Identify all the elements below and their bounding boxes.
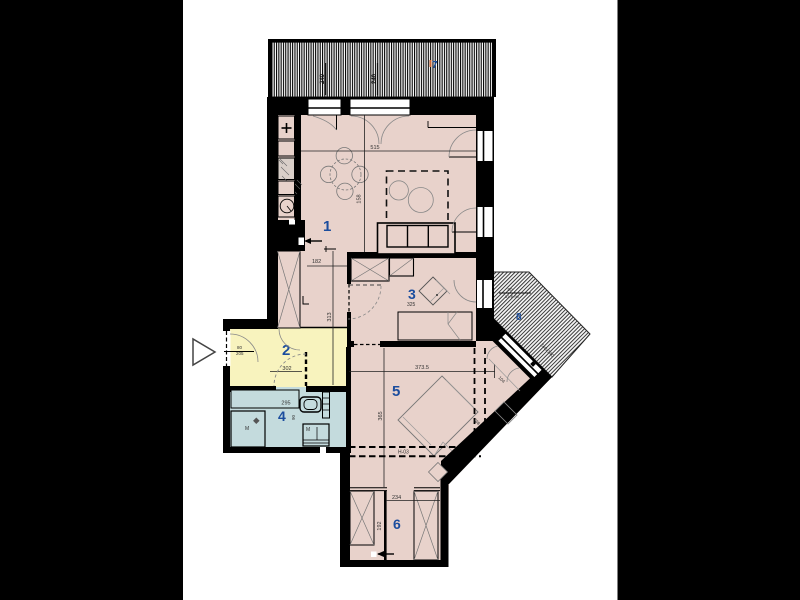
svg-text:182: 182 xyxy=(312,259,321,265)
svg-text:90: 90 xyxy=(291,414,296,420)
svg-text:H-03: H-03 xyxy=(398,450,409,456)
svg-text:7: 7 xyxy=(432,60,438,71)
svg-text:302: 302 xyxy=(282,366,291,372)
svg-text:515: 515 xyxy=(370,145,379,151)
svg-text:80: 80 xyxy=(237,345,243,350)
svg-text:234: 234 xyxy=(392,495,401,501)
svg-text:192: 192 xyxy=(377,521,383,530)
svg-text:90: 90 xyxy=(507,287,513,292)
svg-text:158: 158 xyxy=(357,194,363,203)
svg-text:365: 365 xyxy=(378,411,384,420)
svg-text:6: 6 xyxy=(393,516,401,532)
svg-text:373.5: 373.5 xyxy=(415,365,429,371)
svg-text:325: 325 xyxy=(407,302,416,308)
svg-text:240: 240 xyxy=(320,73,326,84)
svg-text:240: 240 xyxy=(372,73,378,84)
svg-text:3: 3 xyxy=(408,286,416,302)
svg-text:1: 1 xyxy=(323,218,331,235)
svg-text:M: M xyxy=(245,426,249,432)
svg-text:313: 313 xyxy=(327,312,333,321)
svg-text:295: 295 xyxy=(281,401,290,407)
svg-text:4: 4 xyxy=(278,408,286,424)
svg-text:51.B.90: 51.B.90 xyxy=(505,294,520,299)
svg-text:5: 5 xyxy=(392,383,400,400)
svg-text:205: 205 xyxy=(236,351,244,356)
svg-text:8: 8 xyxy=(516,312,522,323)
svg-text:M: M xyxy=(306,427,310,433)
